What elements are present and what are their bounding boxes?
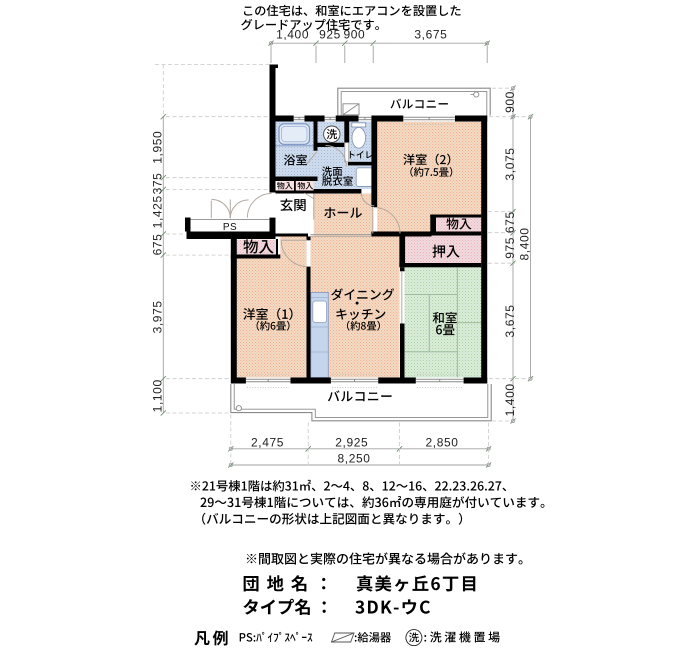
svg-text:1,100: 1,100 (151, 379, 165, 412)
svg-text:3,975: 3,975 (151, 300, 165, 333)
svg-text:3,075: 3,075 (503, 147, 517, 180)
svg-text:675: 675 (151, 234, 165, 256)
svg-text:2,925: 2,925 (335, 435, 368, 449)
svg-text:975: 975 (503, 237, 517, 259)
svg-text:900: 900 (503, 91, 517, 113)
svg-text:3,675: 3,675 (503, 304, 517, 337)
svg-text:8,250: 8,250 (337, 452, 370, 466)
svg-text:375: 375 (151, 173, 165, 195)
svg-text:675: 675 (503, 211, 517, 233)
svg-text:PS: PS (223, 222, 237, 233)
svg-text:8,400: 8,400 (518, 227, 532, 260)
svg-text:2,475: 2,475 (251, 435, 284, 449)
svg-text:3,675: 3,675 (414, 28, 447, 42)
svg-text:2,850: 2,850 (425, 435, 458, 449)
svg-text:1,400: 1,400 (503, 383, 517, 416)
svg-text:1,425: 1,425 (151, 195, 165, 228)
svg-text:1,950: 1,950 (151, 131, 165, 164)
